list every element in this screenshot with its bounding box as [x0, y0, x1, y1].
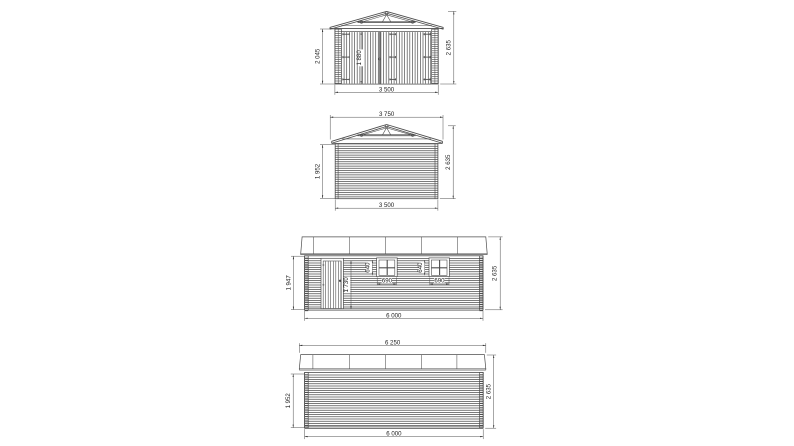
svg-text:3 500: 3 500: [379, 202, 395, 209]
svg-text:3 500: 3 500: [379, 86, 395, 93]
svg-text:6 000: 6 000: [386, 431, 402, 438]
svg-text:640: 640: [417, 262, 424, 273]
svg-text:2 635: 2 635: [492, 265, 499, 281]
svg-text:6 000: 6 000: [386, 312, 402, 319]
svg-text:2 635: 2 635: [446, 39, 453, 55]
svg-text:690: 690: [382, 277, 393, 284]
svg-text:6 250: 6 250: [385, 339, 401, 346]
svg-text:640: 640: [365, 262, 372, 273]
svg-text:1 952: 1 952: [315, 163, 322, 179]
svg-text:1 952: 1 952: [285, 393, 292, 409]
svg-text:1 947: 1 947: [285, 275, 292, 291]
svg-text:2 635: 2 635: [445, 154, 452, 170]
svg-text:2 045: 2 045: [315, 48, 322, 64]
svg-text:690: 690: [434, 277, 445, 284]
svg-text:1 730: 1 730: [343, 277, 350, 293]
svg-text:1 880: 1 880: [356, 50, 363, 66]
svg-text:2 635: 2 635: [486, 383, 493, 399]
svg-text:3 750: 3 750: [379, 111, 395, 118]
